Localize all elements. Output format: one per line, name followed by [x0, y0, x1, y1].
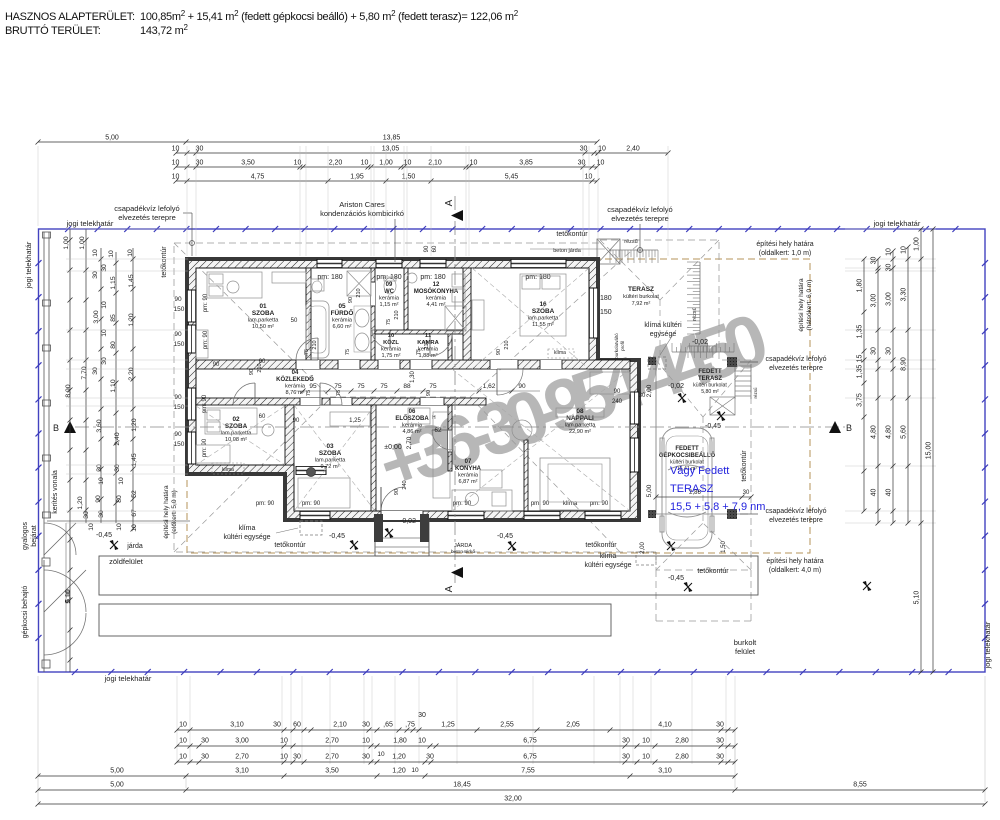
svg-text:30: 30 [201, 754, 209, 761]
svg-text:4,41 m²: 4,41 m² [427, 302, 446, 308]
svg-text:TERASZ: TERASZ [628, 286, 654, 293]
svg-text:csapadékvíz lefolyó: csapadékvíz lefolyó [114, 204, 179, 213]
svg-text:30: 30 [92, 367, 99, 375]
svg-text:FEDETT: FEDETT [698, 369, 722, 375]
svg-text:13,85: 13,85 [383, 135, 401, 142]
svg-text:2,10: 2,10 [428, 160, 442, 167]
svg-text:30: 30 [83, 511, 90, 519]
svg-text:építési hely határa: építési hely határa [163, 485, 170, 539]
svg-text:30: 30 [871, 257, 878, 265]
svg-text:3,00: 3,00 [93, 310, 100, 323]
svg-text:GÉPKOCSIBEÁLLÓ: GÉPKOCSIBEÁLLÓ [659, 451, 716, 459]
svg-text:pm: 90: pm: 90 [302, 501, 321, 507]
svg-text:-0,45: -0,45 [705, 423, 721, 430]
svg-text:lam.parketta: lam.parketta [248, 318, 280, 324]
svg-text:60: 60 [432, 245, 438, 252]
svg-text:30: 30 [580, 146, 588, 153]
svg-text:3,10: 3,10 [658, 768, 672, 775]
svg-text:90: 90 [174, 296, 182, 303]
svg-text:elvezetés terepre: elvezetés terepre [769, 365, 823, 372]
svg-text:75: 75 [380, 383, 388, 390]
svg-text:3,60: 3,60 [96, 419, 103, 432]
svg-text:csapadékvíz lefolyó: csapadékvíz lefolyó [607, 205, 672, 214]
svg-text:60: 60 [293, 722, 301, 729]
svg-text:8,90: 8,90 [901, 357, 908, 371]
svg-text:15,5 + 5,8 + 7,9 nm: 15,5 + 5,8 + 7,9 nm [670, 501, 765, 513]
svg-text:1,80: 1,80 [393, 738, 407, 745]
svg-text:10: 10 [172, 160, 180, 167]
svg-text:2,20: 2,20 [329, 160, 343, 167]
svg-text:(előkert: 5,0 m): (előkert: 5,0 m) [171, 490, 178, 534]
svg-text:62: 62 [434, 427, 442, 434]
svg-text:1,20: 1,20 [392, 754, 406, 761]
svg-text:05: 05 [338, 303, 346, 310]
svg-text:-0,02: -0,02 [668, 383, 684, 390]
svg-text:4,10: 4,10 [658, 722, 672, 729]
svg-text:pm: 180: pm: 180 [525, 274, 550, 281]
svg-text:bejárat: bejárat [31, 525, 38, 546]
svg-text:30: 30 [273, 722, 281, 729]
svg-text:7,92 m²: 7,92 m² [632, 301, 651, 307]
svg-text:2,00: 2,00 [646, 384, 653, 397]
svg-text:-0,45: -0,45 [329, 533, 345, 540]
svg-text:90: 90 [496, 349, 502, 355]
svg-text:pm: 90: pm: 90 [256, 501, 275, 507]
svg-text:2,05: 2,05 [566, 722, 580, 729]
svg-text:95: 95 [309, 383, 317, 390]
svg-text:12: 12 [433, 282, 440, 288]
svg-text:3,50: 3,50 [241, 160, 255, 167]
svg-text:10: 10 [585, 174, 593, 181]
svg-text:jogi telekhatár: jogi telekhatár [66, 219, 114, 228]
svg-text:SZOBA: SZOBA [225, 423, 248, 430]
svg-text:22,90 m²: 22,90 m² [569, 429, 591, 435]
svg-text:40: 40 [871, 489, 878, 497]
svg-text:kültéri egysége: kültéri egysége [584, 562, 631, 569]
svg-text:150: 150 [600, 309, 612, 316]
svg-text:(oldalkert: 1,0 m): (oldalkert: 1,0 m) [759, 250, 812, 257]
svg-text:1,50: 1,50 [402, 174, 416, 181]
svg-text:09: 09 [386, 282, 393, 288]
svg-text:5,00: 5,00 [646, 484, 653, 497]
svg-text:15,00: 15,00 [926, 442, 933, 460]
svg-text:10: 10 [127, 249, 134, 257]
svg-text:3,10: 3,10 [235, 768, 249, 775]
svg-text:1,10: 1,10 [110, 379, 117, 392]
svg-text:10: 10 [116, 523, 123, 531]
svg-text:gépkocsi behajtó: gépkocsi behajtó [22, 586, 29, 639]
svg-text:10: 10 [642, 738, 650, 745]
svg-text:90: 90 [213, 362, 220, 368]
svg-text:FEDETT: FEDETT [675, 446, 699, 452]
svg-text:30: 30 [101, 357, 108, 365]
svg-text:6,75: 6,75 [523, 738, 537, 745]
svg-text:210: 210 [424, 340, 430, 349]
svg-text:járda: járda [126, 543, 143, 550]
svg-text:30: 30 [716, 738, 724, 745]
svg-text:pm: 90: pm: 90 [453, 501, 472, 507]
svg-text:30: 30 [101, 264, 108, 272]
svg-text:±0,00: ±0,00 [384, 444, 402, 451]
svg-text:3,75: 3,75 [857, 393, 864, 407]
svg-text:-0,45: -0,45 [497, 533, 513, 540]
svg-text:10: 10 [362, 738, 370, 745]
svg-text:-0,02: -0,02 [400, 518, 416, 525]
svg-text:30: 30 [716, 754, 724, 761]
svg-text:KÖZL: KÖZL [383, 339, 399, 346]
svg-text:pm: 90: pm: 90 [202, 438, 208, 457]
svg-text:16: 16 [539, 301, 547, 308]
svg-text:30: 30 [886, 264, 893, 272]
svg-text:7,70: 7,70 [81, 366, 88, 379]
svg-text:1,50: 1,50 [721, 541, 727, 553]
svg-text:88: 88 [403, 383, 411, 390]
svg-text:2,70: 2,70 [325, 738, 339, 745]
svg-text:03: 03 [326, 443, 334, 450]
svg-text:30: 30 [92, 271, 99, 279]
svg-text:10: 10 [280, 754, 288, 761]
svg-text:FÜRDŐ: FÜRDŐ [331, 308, 354, 317]
svg-text:30: 30 [743, 490, 750, 496]
svg-text:90: 90 [424, 245, 430, 252]
svg-text:1,35: 1,35 [857, 325, 864, 339]
svg-text:pm: 180: pm: 180 [420, 274, 445, 281]
svg-text:32,00: 32,00 [504, 796, 522, 803]
svg-text:3,00: 3,00 [235, 738, 249, 745]
svg-text:150: 150 [174, 306, 185, 313]
svg-text:5,10: 5,10 [65, 590, 72, 603]
svg-text:jogi telekhatár: jogi telekhatár [24, 241, 33, 289]
svg-text:30: 30 [622, 738, 630, 745]
svg-text:3,00: 3,00 [886, 292, 893, 306]
svg-text:90: 90 [174, 331, 182, 338]
svg-text:30: 30 [622, 754, 630, 761]
svg-text:,75: ,75 [405, 722, 415, 729]
svg-text:75: 75 [429, 383, 437, 390]
svg-text:burkolt: burkolt [734, 638, 757, 647]
svg-text:kerámia: kerámia [402, 423, 423, 429]
svg-text:4,80: 4,80 [886, 425, 893, 439]
svg-text:profil: profil [620, 341, 625, 351]
svg-text:210: 210 [394, 310, 400, 319]
svg-text:10: 10 [294, 160, 302, 167]
svg-text:10: 10 [172, 174, 180, 181]
svg-text:Vágy Fedett: Vágy Fedett [670, 465, 729, 477]
svg-text:1,30: 1,30 [410, 371, 416, 383]
svg-text:90: 90 [614, 389, 621, 395]
svg-text:-0,45: -0,45 [96, 532, 112, 539]
svg-text:HASZNOS ALAPTERÜLET:: HASZNOS ALAPTERÜLET: [5, 11, 135, 23]
svg-text:210: 210 [356, 288, 362, 297]
svg-text:10: 10 [404, 160, 412, 167]
svg-text:30: 30 [362, 722, 370, 729]
svg-text:30: 30 [196, 146, 204, 153]
svg-text:08: 08 [576, 408, 584, 415]
svg-text:60: 60 [259, 359, 266, 365]
svg-text:2,86: 2,86 [689, 490, 701, 496]
svg-text:10: 10 [901, 246, 908, 254]
svg-text:30: 30 [362, 754, 370, 761]
svg-text:100,85m2 + 15,41 m2 (fedett gé: 100,85m2 + 15,41 m2 (fedett gépkocsi beá… [140, 9, 519, 23]
svg-text:KÖZLEKEDŐ: KÖZLEKEDŐ [276, 376, 314, 383]
svg-text:7,55: 7,55 [521, 768, 535, 775]
svg-text:01: 01 [259, 303, 267, 310]
svg-text:10: 10 [470, 160, 478, 167]
svg-text:30: 30 [201, 738, 209, 745]
svg-text:egysége: egysége [650, 331, 677, 338]
svg-text:10: 10 [172, 146, 180, 153]
svg-text:13,05: 13,05 [382, 146, 400, 153]
svg-text:H: H [432, 415, 436, 421]
svg-text:150: 150 [174, 341, 185, 348]
svg-text:lam.parketta: lam.parketta [221, 431, 253, 437]
svg-text:klíma: klíma [600, 553, 617, 560]
svg-text:5,10: 5,10 [914, 591, 921, 605]
svg-text:jogi telekhatár: jogi telekhatár [983, 621, 992, 669]
svg-text:8,90: 8,90 [65, 384, 72, 397]
svg-text:10: 10 [597, 160, 605, 167]
svg-text:KONYHA: KONYHA [455, 466, 482, 472]
svg-text:pm: 90: pm: 90 [203, 293, 209, 312]
svg-text:6,87 m²: 6,87 m² [459, 479, 478, 485]
svg-text:1,20: 1,20 [128, 313, 135, 326]
svg-text:90: 90 [293, 418, 300, 424]
svg-text:elvezetés terepre: elvezetés terepre [118, 213, 176, 222]
svg-text:jogi telekhatár: jogi telekhatár [104, 674, 152, 683]
svg-text:ELŐSZOBA: ELŐSZOBA [395, 415, 429, 422]
svg-text:10: 10 [101, 301, 108, 309]
svg-text:30: 30 [716, 722, 724, 729]
svg-text:A: A [444, 199, 455, 206]
svg-text:zöldfelület: zöldfelület [109, 557, 144, 566]
svg-text:5,00: 5,00 [105, 135, 119, 142]
svg-text:tetőkontúr: tetőkontúr [161, 246, 168, 278]
svg-text:1,45: 1,45 [128, 274, 135, 287]
svg-text:10: 10 [131, 524, 138, 532]
svg-text:SZOBA: SZOBA [532, 308, 555, 315]
svg-text:30: 30 [293, 754, 301, 761]
svg-text:90: 90 [174, 394, 182, 401]
svg-text:90: 90 [518, 383, 526, 390]
svg-text:1,20: 1,20 [131, 418, 138, 431]
svg-text:(hátsókert: 6,0 m): (hátsókert: 6,0 m) [806, 280, 813, 331]
svg-text:rézsű: rézsű [624, 239, 637, 245]
svg-text:2,40: 2,40 [114, 432, 121, 445]
svg-text:2,70: 2,70 [325, 754, 339, 761]
svg-text:06: 06 [409, 409, 416, 415]
svg-text:18,45: 18,45 [453, 782, 471, 789]
svg-text:150: 150 [174, 441, 185, 448]
svg-text:rézsű: rézsű [753, 387, 758, 399]
svg-text:TERASZ: TERASZ [698, 376, 722, 382]
svg-text:85: 85 [110, 314, 117, 322]
svg-text:1,15 m²: 1,15 m² [380, 302, 399, 308]
svg-text:80: 80 [110, 341, 117, 349]
svg-text:2,80: 2,80 [675, 754, 689, 761]
svg-text:75: 75 [386, 319, 392, 325]
svg-text:B: B [846, 423, 852, 433]
svg-text:67: 67 [131, 509, 138, 517]
svg-text:B: B [53, 423, 59, 433]
svg-text:SZOBA: SZOBA [252, 310, 275, 317]
svg-text:2,70: 2,70 [406, 436, 413, 449]
svg-text:kerámia: kerámia [379, 296, 400, 302]
svg-text:30: 30 [426, 754, 434, 761]
svg-text:6,75: 6,75 [523, 754, 537, 761]
svg-text:1,00: 1,00 [63, 236, 70, 249]
svg-text:5,60: 5,60 [901, 425, 908, 439]
svg-text:75: 75 [306, 390, 312, 396]
svg-text:kondenzációs kombicirkó: kondenzációs kombicirkó [320, 209, 404, 218]
svg-text:10: 10 [92, 249, 99, 257]
svg-text:10,50 m²: 10,50 m² [252, 324, 274, 330]
svg-text:tetőkontúr: tetőkontúr [741, 450, 748, 482]
svg-text:90: 90 [95, 495, 102, 503]
svg-text:52: 52 [131, 490, 138, 498]
svg-text:2,10: 2,10 [333, 722, 347, 729]
svg-text:1,80: 1,80 [857, 279, 864, 293]
svg-text:kerámia: kerámia [332, 318, 353, 324]
svg-text:240: 240 [402, 480, 408, 489]
svg-text:klíma: klíma [554, 350, 566, 356]
svg-text:10: 10 [411, 767, 419, 774]
svg-text:kültéri egysége: kültéri egysége [223, 534, 270, 541]
svg-text:90: 90 [249, 369, 255, 375]
svg-text:1,20: 1,20 [392, 768, 406, 775]
svg-text:BRUTTÓ TERÜLET:: BRUTTÓ TERÜLET: [5, 24, 101, 37]
svg-text:1,45: 1,45 [131, 453, 138, 466]
svg-text:10: 10 [88, 523, 95, 531]
svg-text:75: 75 [416, 349, 422, 355]
svg-text:1,25: 1,25 [441, 722, 455, 729]
svg-text:75: 75 [304, 349, 310, 355]
svg-text:2,40: 2,40 [626, 146, 640, 153]
svg-text:jogi telekhatár: jogi telekhatár [873, 219, 921, 228]
svg-text:3,85: 3,85 [519, 160, 533, 167]
svg-text:elvezetés terepre: elvezetés terepre [611, 214, 669, 223]
svg-text:A: A [444, 585, 455, 592]
svg-text:10: 10 [179, 754, 187, 761]
svg-text:tetőkontúr: tetőkontúr [556, 231, 588, 238]
svg-text:90: 90 [394, 489, 400, 495]
svg-text:lam.parketta: lam.parketta [315, 458, 347, 464]
svg-text:,65: ,65 [383, 722, 393, 729]
svg-text:10: 10 [108, 250, 115, 258]
svg-text:tetőkontúr: tetőkontúr [274, 542, 306, 549]
svg-text:240: 240 [612, 399, 623, 405]
svg-text:építési hely határa: építési hely határa [756, 241, 813, 248]
svg-text:60: 60 [259, 414, 266, 420]
svg-text:30: 30 [871, 347, 878, 355]
svg-text:90: 90 [348, 297, 354, 303]
svg-text:90: 90 [174, 431, 182, 438]
svg-text:10: 10 [280, 738, 288, 745]
svg-text:klíma: klíma [239, 525, 256, 532]
svg-text:pm: 180: pm: 180 [376, 274, 401, 281]
svg-text:lam.parketta: lam.parketta [565, 423, 597, 429]
svg-text:1,15: 1,15 [110, 276, 117, 289]
svg-text:kerítés vonala: kerítés vonala [52, 470, 59, 514]
svg-text:3,30: 3,30 [901, 288, 908, 302]
svg-text:10: 10 [418, 738, 426, 745]
svg-text:JÁRDA: JÁRDA [454, 542, 472, 549]
svg-text:10: 10 [642, 754, 650, 761]
svg-text:NAPPALI: NAPPALI [566, 415, 594, 422]
svg-text:lam.parketta: lam.parketta [528, 316, 560, 322]
svg-text:tetőkontúr: tetőkontúr [585, 542, 617, 549]
svg-text:burkolatváltó: burkolatváltó [614, 333, 619, 359]
svg-text:3,50: 3,50 [325, 768, 339, 775]
svg-text:2,70: 2,70 [235, 754, 249, 761]
svg-text:pm: 180: pm: 180 [317, 274, 342, 281]
svg-text:30: 30 [886, 347, 893, 355]
svg-text:143,72 m2: 143,72 m2 [140, 23, 188, 37]
svg-text:1,62: 1,62 [483, 383, 496, 390]
svg-text:4,75: 4,75 [251, 174, 265, 181]
svg-text:kerámia: kerámia [458, 473, 479, 479]
svg-text:50: 50 [291, 318, 298, 324]
svg-text:75: 75 [357, 383, 365, 390]
svg-text:1,75 m²: 1,75 m² [382, 353, 401, 359]
svg-text:1,00: 1,00 [79, 236, 86, 249]
svg-text:rézsű: rézsű [692, 307, 698, 320]
svg-text:-0,45: -0,45 [668, 575, 684, 582]
svg-text:10: 10 [886, 248, 893, 256]
svg-text:1,95: 1,95 [350, 174, 364, 181]
svg-text:150: 150 [174, 404, 185, 411]
svg-text:kerámia: kerámia [426, 296, 447, 302]
svg-text:210: 210 [504, 340, 510, 349]
svg-text:10: 10 [179, 738, 187, 745]
svg-text:csapadékvíz lefolyó: csapadékvíz lefolyó [765, 508, 826, 515]
svg-text:2,80: 2,80 [675, 738, 689, 745]
svg-text:6,60 m²: 6,60 m² [333, 324, 352, 330]
svg-text:kültéri burkolat: kültéri burkolat [693, 383, 727, 389]
svg-text:2,55: 2,55 [500, 722, 514, 729]
svg-text:1,35: 1,35 [857, 365, 864, 379]
svg-text:elvezetés terepre: elvezetés terepre [769, 517, 823, 524]
svg-text:10: 10 [377, 751, 385, 758]
svg-text:1,00: 1,00 [914, 237, 921, 251]
svg-text:30: 30 [196, 160, 204, 167]
svg-text:30: 30 [639, 393, 646, 399]
svg-text:40: 40 [886, 489, 893, 497]
svg-text:02: 02 [232, 416, 240, 423]
svg-text:5,00: 5,00 [110, 768, 124, 775]
svg-text:3,00: 3,00 [871, 294, 878, 308]
svg-text:30: 30 [418, 712, 426, 719]
svg-text:210: 210 [312, 340, 318, 349]
svg-text:10: 10 [179, 722, 187, 729]
svg-text:07: 07 [465, 459, 472, 465]
svg-text:10: 10 [361, 160, 369, 167]
svg-text:építési hely határa: építési hely határa [766, 558, 823, 565]
svg-text:klíma kültéri: klíma kültéri [644, 322, 682, 329]
svg-text:-0,02: -0,02 [692, 339, 708, 346]
svg-text:10: 10 [98, 477, 105, 485]
svg-text:gyalogos: gyalogos [22, 521, 29, 550]
svg-text:építési hely határa: építési hely határa [798, 278, 805, 332]
svg-text:75: 75 [336, 390, 342, 396]
svg-text:9,72 m²: 9,72 m² [321, 464, 340, 470]
svg-text:5,45: 5,45 [505, 174, 519, 181]
svg-text:3,10: 3,10 [230, 722, 244, 729]
svg-text:10: 10 [118, 477, 125, 485]
svg-text:04: 04 [292, 370, 299, 376]
svg-text:1,20: 1,20 [77, 496, 84, 509]
svg-text:8,55: 8,55 [853, 782, 867, 789]
svg-text:90: 90 [426, 390, 432, 396]
